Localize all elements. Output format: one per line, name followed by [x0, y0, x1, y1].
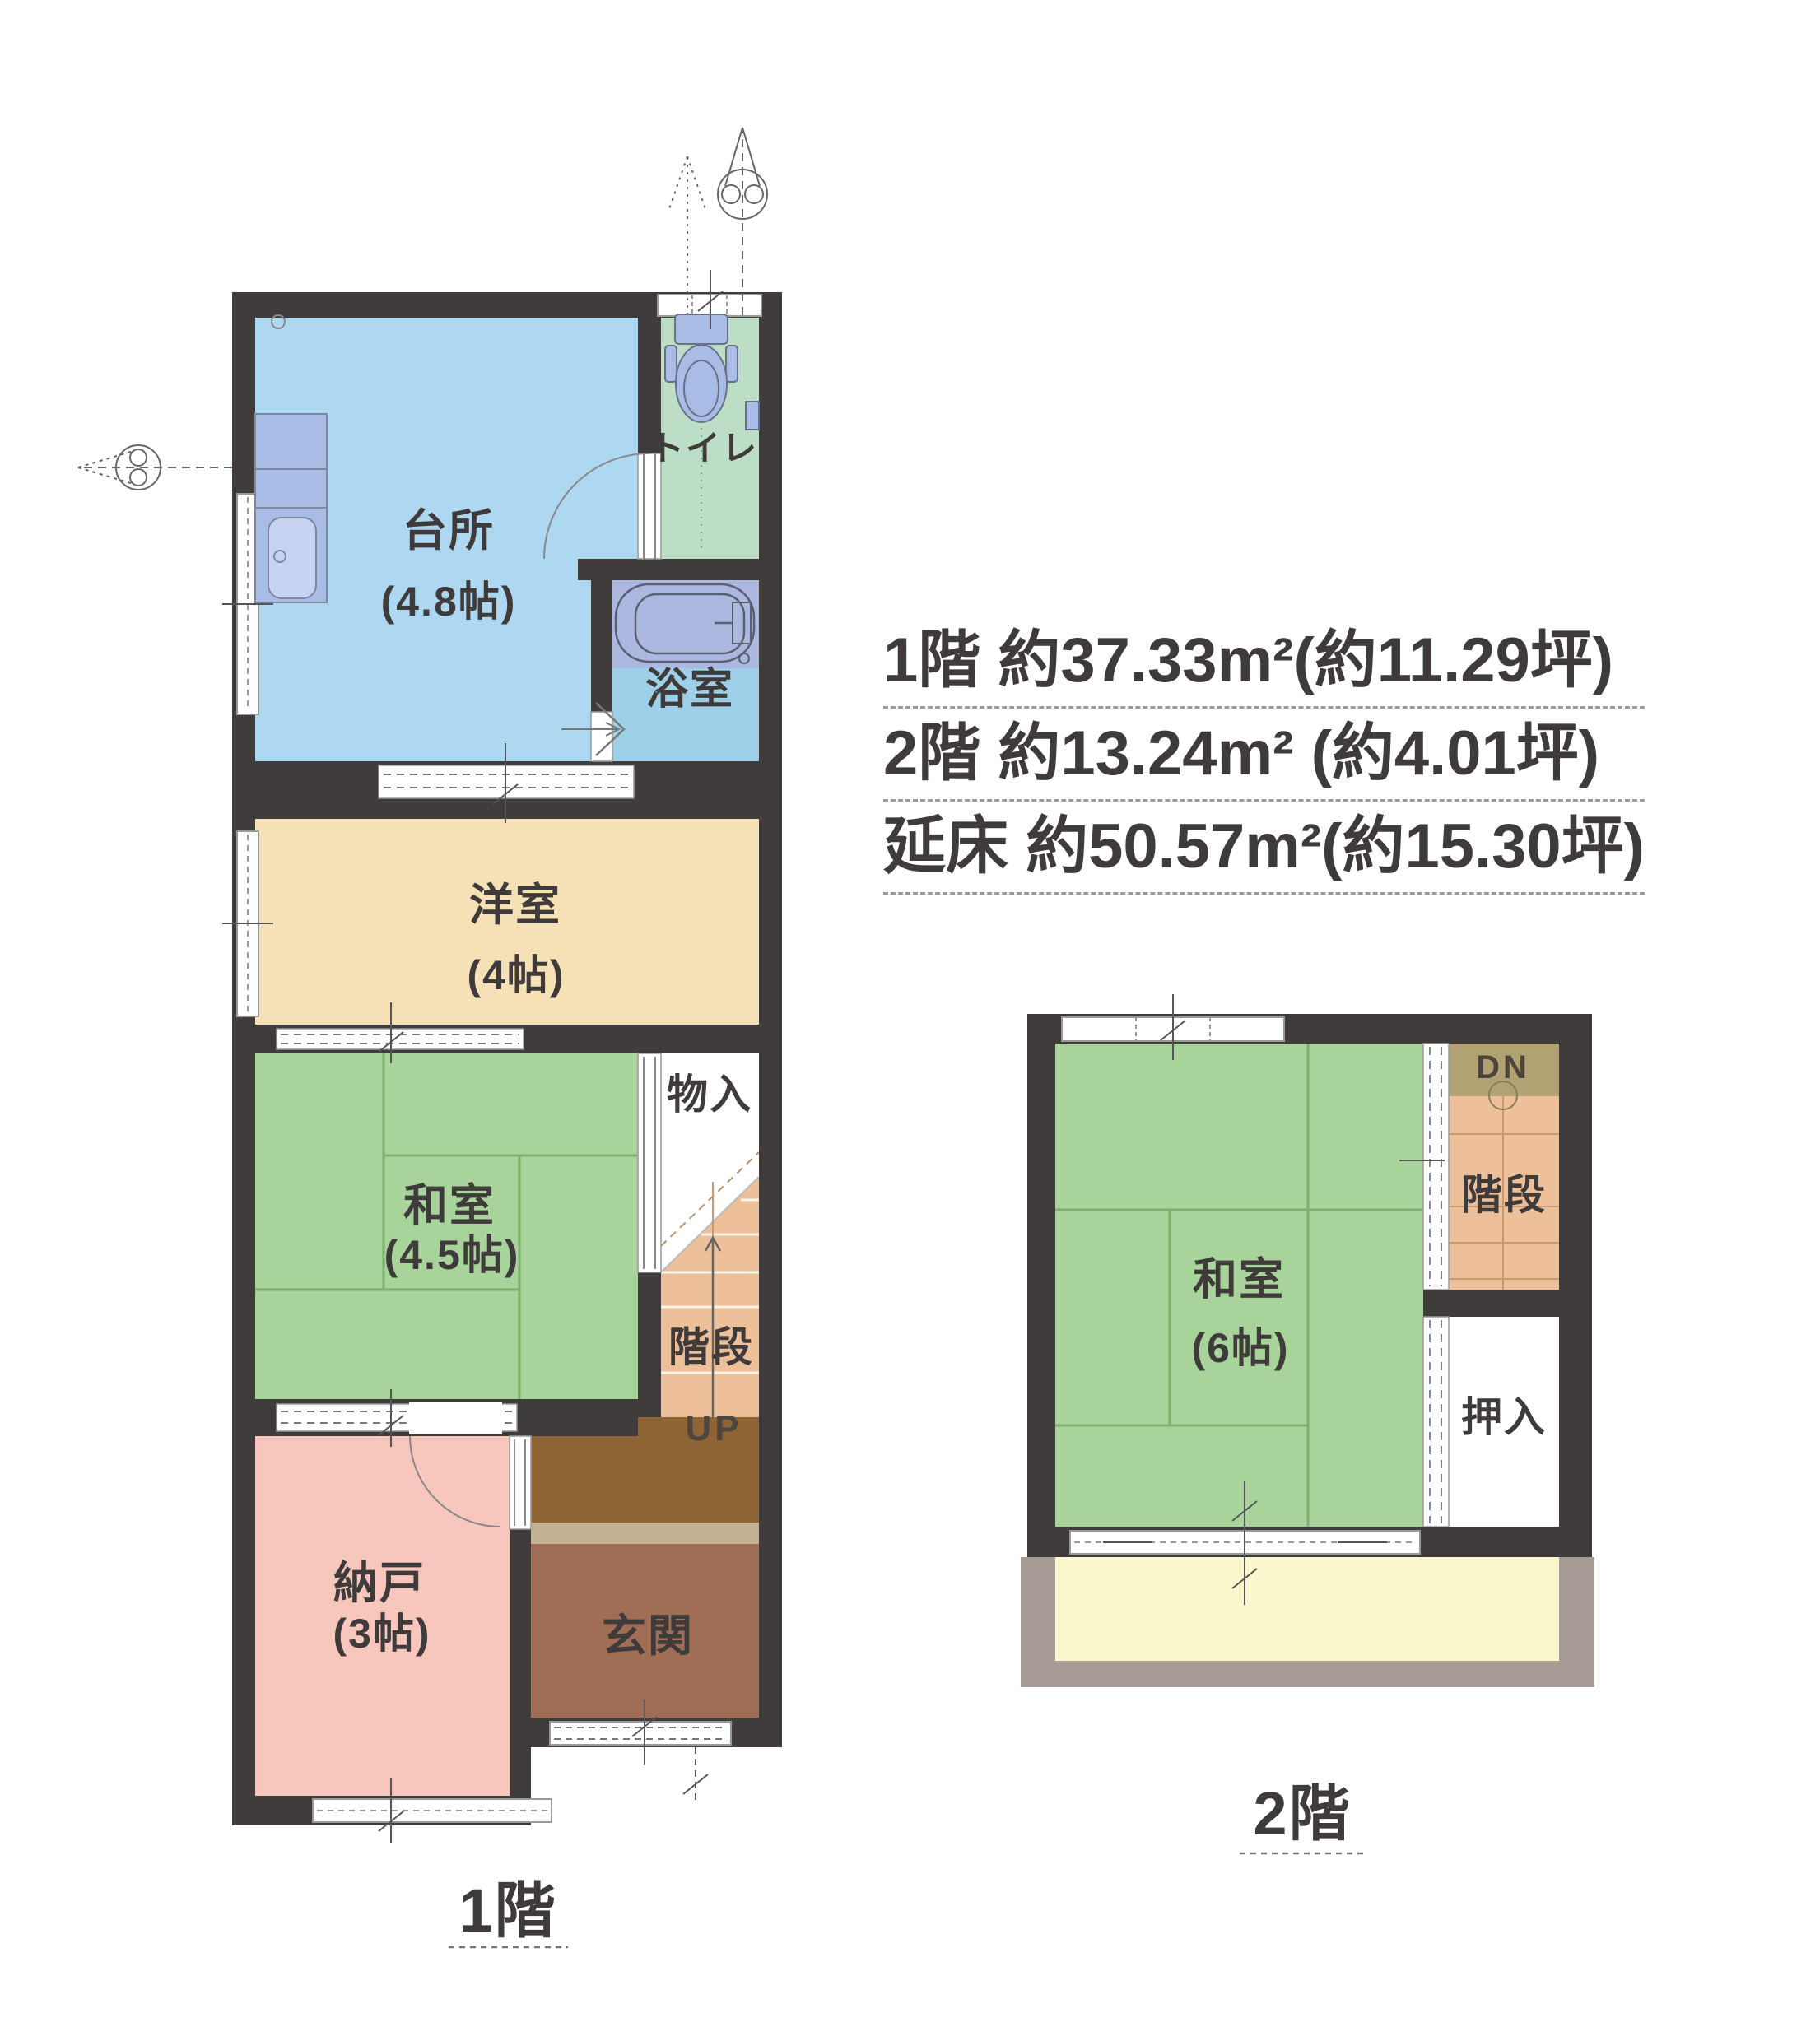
room-size-japanese-2f: (6帖) [1191, 1327, 1289, 1369]
room-label-stairs-2f: 階段 [1461, 1174, 1547, 1216]
area-row-floor2: 2階 約13.24m² (約4.01坪) [883, 709, 1645, 802]
back-room-door-opening [409, 1402, 502, 1434]
room-label-closet-2f: 押入 [1461, 1397, 1547, 1438]
room-size-japanese-1f: (4.5帖) [384, 1234, 520, 1276]
room-label-japanese-2f: 和室 [1193, 1258, 1285, 1302]
kitchen-sink [268, 518, 316, 598]
utility-arrow-up-icon [718, 128, 767, 315]
room-size-western: (4帖) [467, 955, 565, 996]
back-room-side-door [510, 1436, 531, 1529]
room-label-stairs-1f: 階段 [668, 1327, 754, 1368]
floor-plan-drawing [0, 0, 1820, 2041]
room-size-back-room: (3帖) [333, 1613, 431, 1654]
kitchen-counter [255, 414, 327, 602]
entry-arrow-up-icon [669, 156, 705, 315]
floor-plan-sheet: 台所 (4.8帖) トイレ 浴室 洋室 (4帖) 和室 (4.5帖) 物入 階段… [0, 0, 1820, 2041]
stairs2-sliding-door [1423, 1044, 1449, 1290]
room-label-kitchen: 台所 [403, 509, 495, 553]
entrance-door [550, 1722, 731, 1745]
room-label-storage: 物入 [667, 1074, 752, 1115]
room-label-western: 洋室 [469, 883, 561, 928]
storage-sliding-door [638, 1053, 661, 1272]
area-summary-table: 1階 約37.33m²(約11.29坪) 2階 約13.24m² (約4.01坪… [883, 616, 1645, 895]
stairs-direction-dn: DN [1476, 1051, 1530, 1084]
stairs-direction-up: UP [685, 1411, 742, 1447]
room-label-japanese-1f: 和室 [403, 1183, 496, 1228]
closet2-sliding-door [1423, 1317, 1449, 1527]
room-label-back-room: 納戸 [333, 1561, 426, 1606]
room-label-toilet: トイレ [649, 431, 758, 466]
room-label-bath: 浴室 [645, 668, 734, 711]
room-label-entrance: 玄関 [602, 1614, 694, 1658]
balcony-floor [1055, 1557, 1559, 1661]
utility-arrow-left-icon [78, 445, 232, 490]
area-row-total: 延床 約50.57m²(約15.30坪) [883, 802, 1645, 895]
floor2-label: 2階 [1253, 1783, 1351, 1844]
balcony-edge-bottom [1021, 1661, 1594, 1687]
room-size-kitchen: (4.8帖) [381, 581, 517, 622]
floor1-label: 1階 [458, 1881, 556, 1941]
western-room-sliding-door [277, 1029, 524, 1049]
area-row-floor1: 1階 約37.33m²(約11.29坪) [883, 616, 1645, 709]
entrance-step [531, 1523, 759, 1544]
bath-door [591, 712, 612, 761]
back-room-window [313, 1799, 552, 1822]
toilet-door [638, 453, 661, 559]
